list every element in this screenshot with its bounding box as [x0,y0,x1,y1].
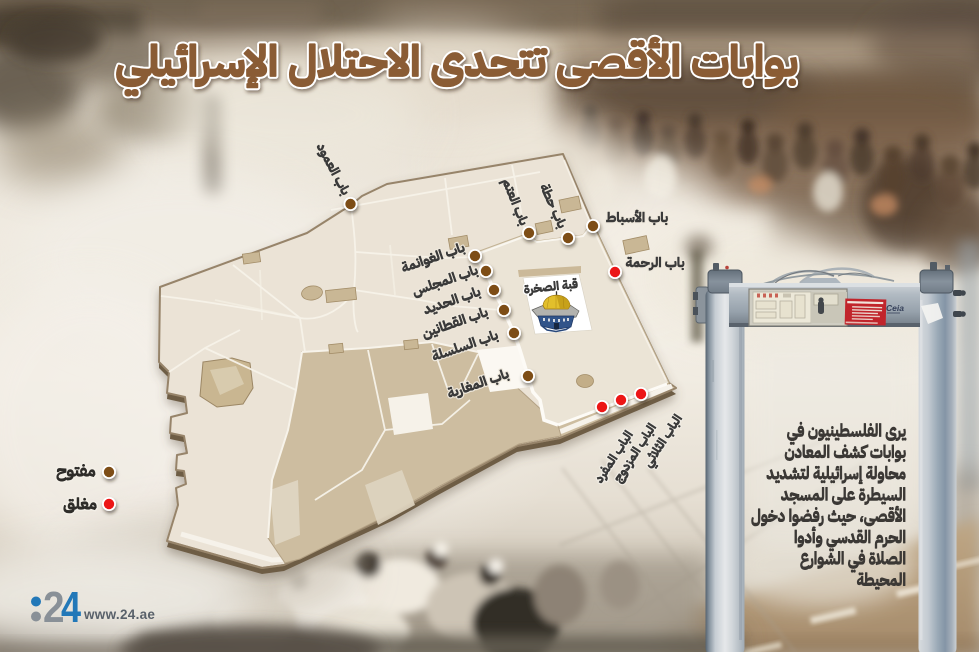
svg-text:4: 4 [61,583,82,632]
svg-text:Ceia: Ceia [886,303,904,313]
svg-text:www.24.ae: www.24.ae [83,607,155,622]
